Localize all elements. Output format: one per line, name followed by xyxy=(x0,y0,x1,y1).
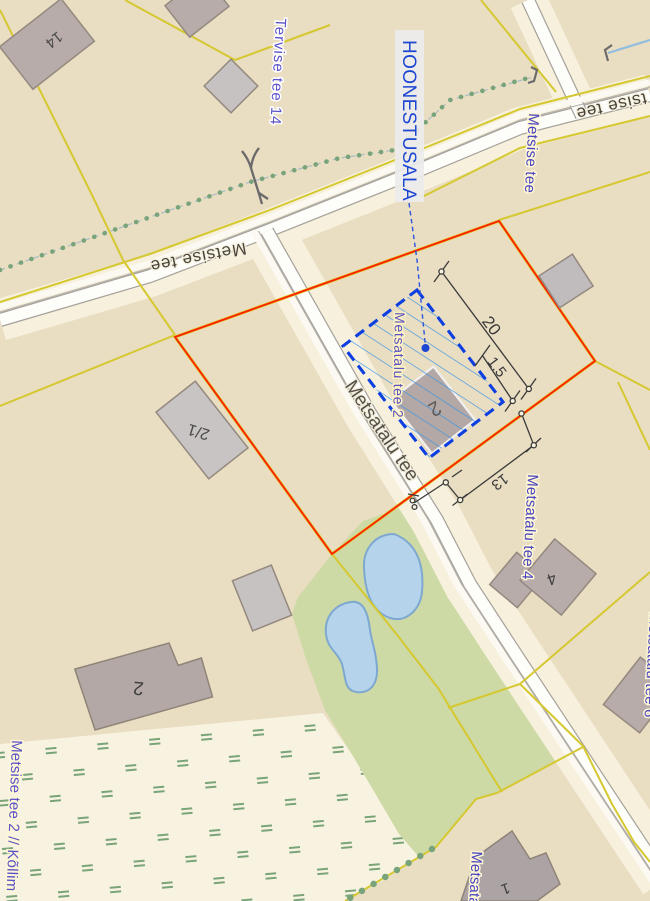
svg-text:2: 2 xyxy=(132,677,144,699)
svg-text:Metsatalu tee 2: Metsatalu tee 2 xyxy=(390,312,408,418)
svg-text:HOONESTUSALA: HOONESTUSALA xyxy=(398,40,419,201)
